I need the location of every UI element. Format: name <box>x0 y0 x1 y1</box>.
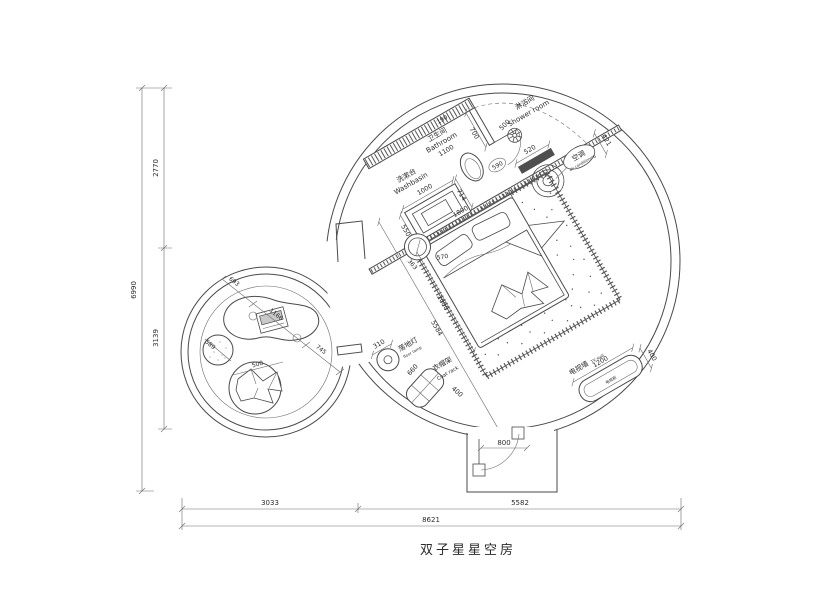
dim-520: 520 <box>523 143 538 156</box>
dim-ext-lines-bottom <box>182 498 681 530</box>
dim-1000: 1000 <box>416 182 434 197</box>
dim-6990: 6990 <box>130 281 138 299</box>
entrance: 800 <box>467 427 557 492</box>
entrance-opening <box>468 427 554 441</box>
dim-800: 800 <box>497 439 510 447</box>
drain-petals <box>506 126 524 144</box>
dim-8621: 8621 <box>422 516 440 524</box>
dim-3139: 3139 <box>152 329 160 347</box>
drain-outer <box>505 126 524 145</box>
dim-5582: 5582 <box>511 499 529 507</box>
drawing-title: 双子星星空房 <box>420 542 516 558</box>
dim-745: 745 <box>314 344 327 357</box>
dim-5584: 5584 <box>429 319 444 337</box>
dim-3033: 3033 <box>261 499 279 507</box>
dims-bottom: 3033 5582 8621 <box>179 498 684 530</box>
toilet <box>456 149 488 185</box>
dim-400-rack: 400 <box>450 385 465 399</box>
floor-plan-svg: 淋浴间 Shower room 空调 air conditioning 卫生间 … <box>0 0 837 592</box>
dims-left: 6990 2770 3139 <box>130 85 172 494</box>
dim-ext-lines-left <box>136 88 172 491</box>
drain-center <box>512 133 517 138</box>
dim-2000: 2000 <box>435 294 450 312</box>
dim-660: 660 <box>406 363 420 378</box>
left-room-furniture: 589 500 693 1166 745 <box>203 276 344 414</box>
door-jamb-top <box>512 427 524 439</box>
dim-693: 693 <box>227 276 240 289</box>
floor-drain-icon <box>505 126 524 145</box>
floor-plan-canvas: 淋浴间 Shower room 空调 air conditioning 卫生间 … <box>0 0 837 592</box>
dim-2770: 2770 <box>152 159 160 177</box>
dim-400-tv: 400 <box>645 348 658 363</box>
